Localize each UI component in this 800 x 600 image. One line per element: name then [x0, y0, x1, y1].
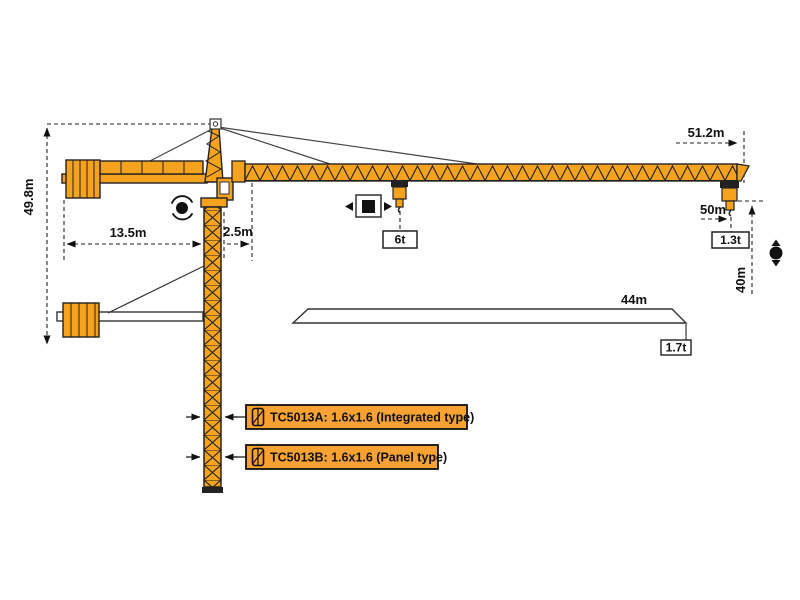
counterjib-upper-beam — [100, 161, 203, 174]
jib-tie-cable-short — [217, 127, 333, 165]
variant-box-b: TC5013B: 1.6x1.6 (Panel type) — [246, 445, 447, 469]
tower-mast — [204, 207, 221, 487]
jib-tie-cable-long — [218, 127, 484, 165]
counter-jib — [62, 160, 207, 198]
turntable — [201, 198, 227, 207]
trolley-travel-icon — [345, 195, 392, 217]
hook-radius-label: 50m — [700, 202, 726, 217]
short-jib-length-label: 44m — [621, 292, 647, 307]
operator-cab — [217, 178, 233, 200]
offset-dimension-label: 2.5m — [223, 224, 253, 239]
guy-cables — [148, 127, 484, 165]
jib-root-joint — [232, 161, 245, 182]
slewing-icon — [172, 196, 192, 219]
mast-base — [202, 487, 223, 493]
height-dimension-label: 49.8m — [21, 179, 36, 216]
hook — [399, 207, 401, 213]
trolley-body — [393, 187, 406, 199]
counterweight-block — [66, 160, 100, 198]
load-label-1-3t: 1.3t — [720, 233, 741, 247]
trolley-travel-icon-left-arrow — [345, 202, 353, 211]
jib-lattice-band — [245, 164, 737, 181]
main-jib — [232, 161, 749, 182]
trolley-bracket — [391, 180, 408, 187]
jib-tip-piece — [737, 164, 749, 181]
cab-window — [220, 182, 229, 194]
hoisting-icon — [770, 240, 783, 267]
tip-radius-dimension-label: 51.2m — [688, 125, 725, 140]
crane-diagram: 49.8m 13.5m 2.5m 51.2m 50m 40m 44m 1.7t — [0, 0, 800, 600]
apex-column — [205, 128, 223, 182]
trolley-travel-icon-right-arrow — [384, 202, 392, 211]
ballast-tie-rod — [108, 266, 204, 313]
counterjib-tie-cable — [148, 127, 216, 162]
variant-b-label: TC5013B: 1.6x1.6 (Panel type) — [270, 451, 447, 465]
tip-trolley-body — [722, 188, 737, 201]
load-label-1-7t: 1.7t — [666, 341, 687, 355]
hoisting-icon-down-arrow — [772, 260, 781, 267]
ballast-block — [63, 303, 99, 337]
hook-height-label: 40m — [733, 267, 748, 293]
variant-a-label: TC5013A: 1.6x1.6 (Integrated type) — [270, 411, 474, 425]
hoisting-icon-dot — [770, 247, 783, 260]
ballast-assembly — [57, 266, 204, 337]
variant-box-a: TC5013A: 1.6x1.6 (Integrated type) — [246, 405, 474, 429]
short-jib-outline: 1.7t — [293, 309, 691, 355]
load-label-6t: 6t — [395, 233, 406, 247]
short-jib-shape — [293, 309, 686, 323]
counterjib-dimension-label: 13.5m — [110, 225, 147, 240]
apex-pulley-wheel — [213, 122, 217, 126]
hook-block — [396, 199, 403, 207]
tip-hook-block — [726, 201, 734, 210]
trolley-travel-icon-square — [362, 200, 375, 213]
tip-hook — [729, 210, 731, 216]
tip-trolley-bracket — [720, 181, 739, 188]
crane-diagram-canvas: 49.8m 13.5m 2.5m 51.2m 50m 40m 44m 1.7t — [0, 0, 800, 600]
slewing-icon-dot — [176, 202, 188, 214]
tower-head — [205, 119, 223, 182]
hoisting-icon-up-arrow — [772, 240, 781, 247]
